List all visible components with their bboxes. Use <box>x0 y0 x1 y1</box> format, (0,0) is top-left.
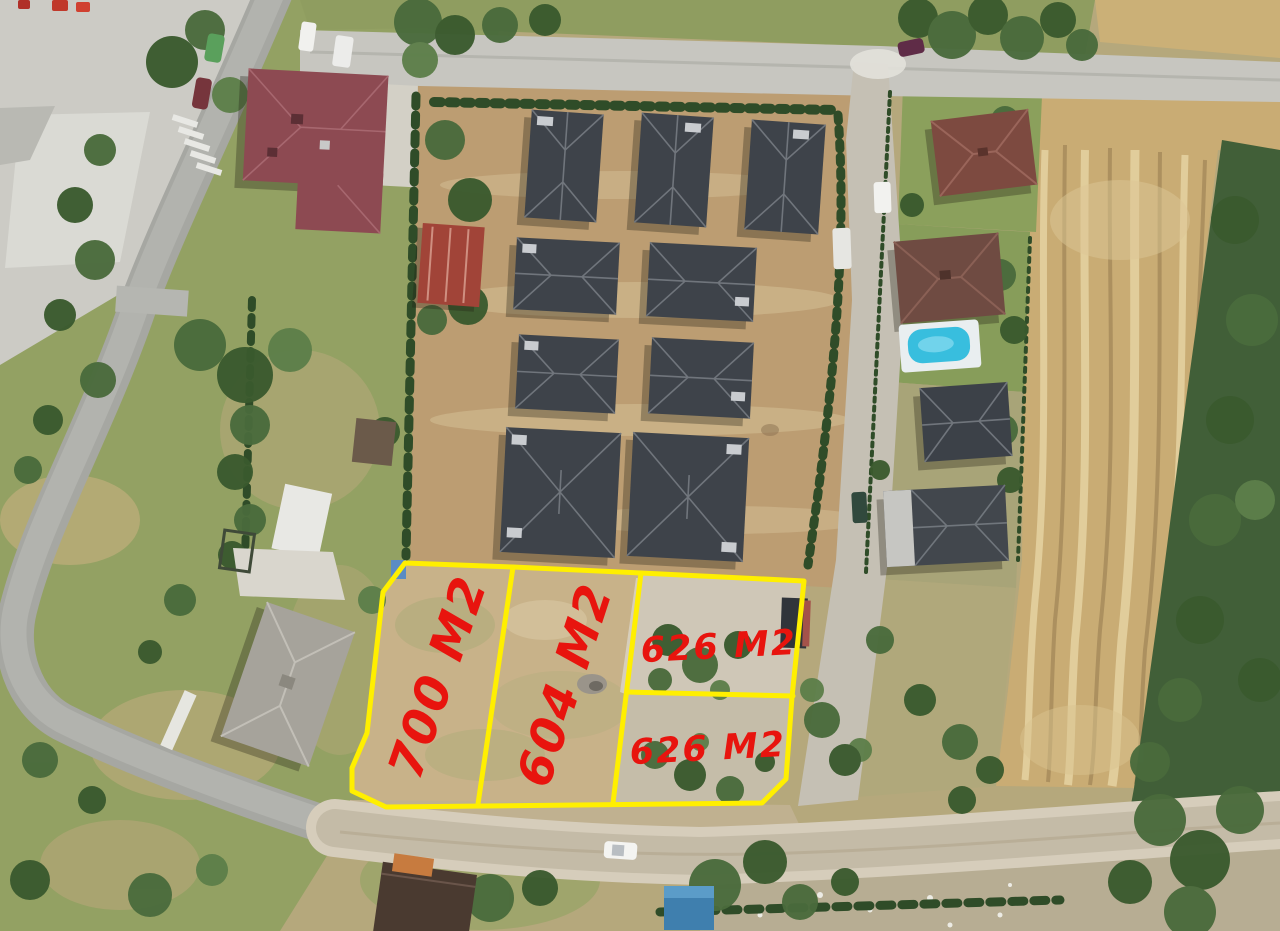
dark-roof-house-1 <box>913 382 1013 470</box>
construction-house-5 <box>639 242 757 330</box>
truck-white-site <box>832 228 851 270</box>
dirt-track <box>430 404 850 436</box>
pool-house <box>887 233 1006 332</box>
brown-roof-house <box>924 109 1038 205</box>
construction-house-7 <box>641 337 754 427</box>
construction-house-8 <box>492 427 621 566</box>
parcel-label-626-lower: 626 M2 <box>629 725 787 773</box>
aerial-photo: 700 M2 604 M2 626 M2 626 M2 <box>0 0 1280 931</box>
construction-house-2 <box>627 112 714 235</box>
dry-grass-patch <box>40 820 200 910</box>
car-red-lot-3 <box>18 0 30 9</box>
aerial-photo-canvas: 700 M2 604 M2 626 M2 626 M2 <box>0 0 1280 931</box>
blue-shed <box>664 886 714 930</box>
construction-house-4 <box>506 237 620 323</box>
car-red-lot-1 <box>52 0 68 11</box>
dark-roof-house-2 <box>876 485 1009 576</box>
dirt-spot <box>761 424 779 436</box>
red-shed <box>412 223 485 312</box>
swimming-pool <box>898 319 981 372</box>
driveway <box>233 548 345 600</box>
construction-house-3 <box>737 119 826 242</box>
road-white-blotch <box>850 49 906 79</box>
parcel-label-626-upper: 626 M2 <box>640 623 798 671</box>
car-white-right-road <box>873 182 891 214</box>
construction-house-1 <box>517 109 604 230</box>
construction-house-9 <box>619 432 749 570</box>
car-red-lot-2 <box>76 2 90 12</box>
car-white-bottom <box>603 841 637 860</box>
dark-shed <box>352 418 396 466</box>
road-side-stub <box>115 286 189 317</box>
car-dark-green <box>851 492 868 524</box>
construction-house-6 <box>508 334 619 421</box>
